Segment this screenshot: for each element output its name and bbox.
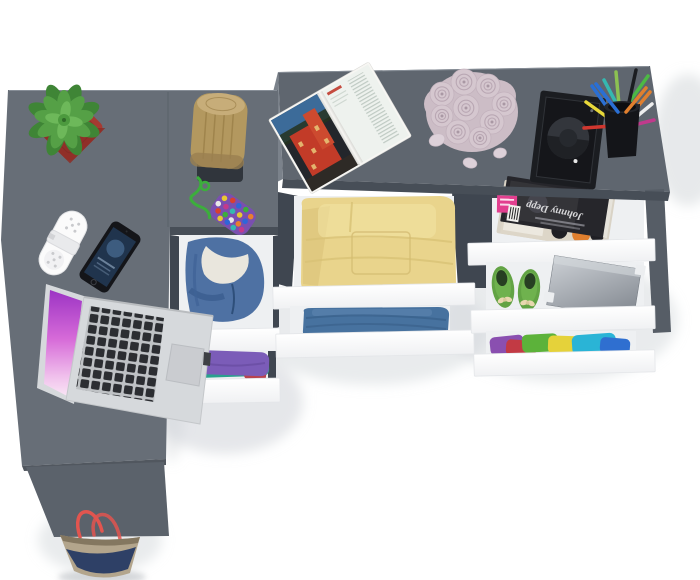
- centre-drawer1-front: [273, 283, 475, 309]
- right-drawer2-front: [471, 306, 656, 333]
- furniture-render: Johnny Depp: [0, 0, 700, 580]
- blue-hoodie: [185, 237, 264, 321]
- barcode: [506, 205, 520, 223]
- chest-centre-drawers: [273, 192, 500, 358]
- centre-drawer2-front: [276, 330, 474, 358]
- wood-stump-decor: [190, 91, 249, 182]
- product-photo-stage: Johnny Depp: [0, 0, 700, 580]
- black-photo-frame: [530, 90, 607, 189]
- chest-right-drawers: Johnny Depp: [468, 175, 656, 377]
- cabinet-opening-edge: [170, 227, 278, 235]
- laptop-trackpad: [166, 344, 204, 386]
- yellow-folded-clothes: [301, 196, 456, 292]
- right-drawer3-front: [474, 350, 655, 376]
